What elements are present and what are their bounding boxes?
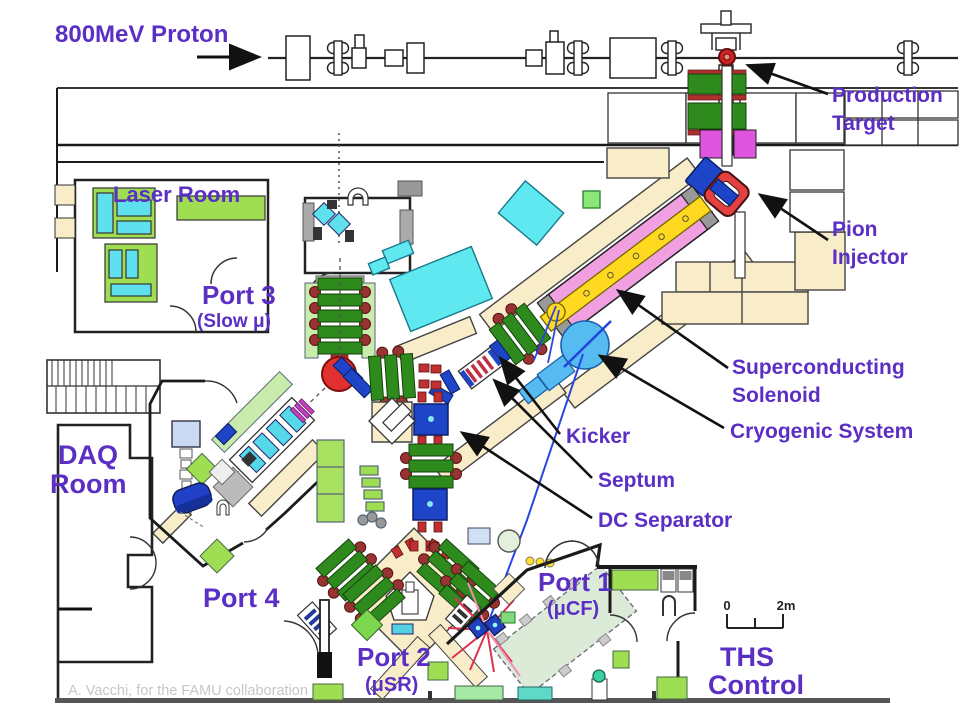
- door-arc: [130, 563, 156, 589]
- port3-label: Port 3: [202, 280, 276, 310]
- production-target-arrow: [750, 66, 828, 94]
- daq-room-label-2: Room: [50, 469, 127, 499]
- production-target-label-2: Target: [832, 112, 895, 135]
- scale-start-label: 0: [723, 598, 730, 613]
- proton-beam-label: 800MeV Proton: [55, 21, 228, 48]
- port3-sub-label: (Slow μ): [197, 311, 271, 332]
- ths-control-label-2: Control: [708, 670, 804, 700]
- port1-sub-label: (μCF): [547, 598, 599, 620]
- green-racks: [317, 440, 386, 528]
- daq-room-label-1: DAQ: [58, 440, 118, 470]
- port4-dipole: [170, 480, 214, 516]
- facility-floorplan-diagram: 0 2m 800MeV Proton Production Target Pio…: [0, 0, 960, 720]
- ths-control-label-1: THS: [720, 642, 774, 672]
- magenta-shield-block: [734, 130, 756, 158]
- scale-bar: [727, 614, 783, 628]
- watermark: A. Vacchi, for the FAMU collaboration: [68, 683, 308, 699]
- port2-beam-window: [298, 602, 337, 642]
- cryogenic-label: Cryogenic System: [730, 420, 913, 443]
- dc-separator-label: DC Separator: [598, 509, 732, 532]
- solenoid-label-2: Solenoid: [732, 384, 821, 407]
- port1-label: Port 1: [538, 567, 612, 597]
- scale-end-label: 2m: [777, 598, 796, 613]
- quadrupole-magnet: [401, 444, 462, 488]
- target-quadrupoles: [688, 70, 746, 135]
- pion-injector-label-1: Pion: [832, 218, 878, 241]
- door-arc: [244, 528, 268, 542]
- production-target-label-1: Production: [832, 84, 943, 107]
- solenoid-end-cap: [547, 303, 565, 321]
- central-hub: [369, 398, 415, 444]
- pion-injector-label-2: Injector: [832, 246, 908, 269]
- port2-label: Port 2: [357, 642, 431, 672]
- door-arc: [205, 381, 237, 403]
- port2-sub-label: (μSR): [365, 674, 418, 696]
- door-arc: [667, 613, 695, 641]
- cabinet-icons: [661, 569, 693, 592]
- septum-label: Septum: [598, 469, 675, 492]
- laser-room-label: Laser Room: [113, 182, 240, 207]
- port4-label: Port 4: [203, 583, 280, 613]
- floorplan-svg: 0 2m 800MeV Proton Production Target Pio…: [0, 0, 960, 720]
- kicker-label: Kicker: [566, 425, 630, 448]
- daq-room: [47, 360, 160, 698]
- marker-dot: [526, 557, 534, 565]
- solenoid-label-1: Superconducting: [732, 356, 905, 379]
- proton-beamline: [197, 31, 958, 80]
- magenta-shield-block: [700, 130, 722, 158]
- cryogenic-arrow: [602, 357, 724, 428]
- port4-console: [172, 421, 200, 447]
- stairs: [47, 360, 160, 413]
